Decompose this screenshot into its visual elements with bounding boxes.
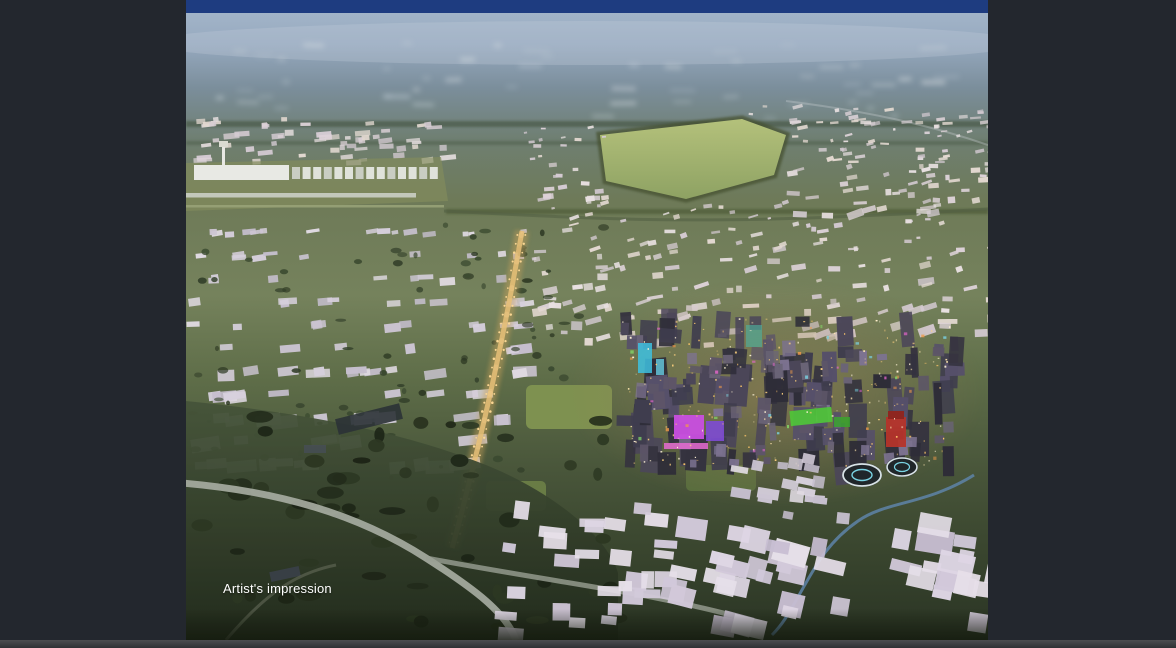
control-tower <box>222 145 225 165</box>
taxiway <box>186 205 444 208</box>
magenta-lit-building <box>674 415 704 439</box>
page-content: Artist's impression <box>186 0 988 640</box>
bottom-ui-strip <box>0 640 1176 648</box>
cyan-lit-tower <box>638 343 652 373</box>
image-caption: Artist's impression <box>223 581 332 596</box>
aerial-city-render: Artist's impression <box>186 13 988 640</box>
bottom-vignette <box>186 609 988 640</box>
aerial-render-graphic <box>186 13 988 640</box>
viewer-background: { "header": { "bar_label": "" }, "hero":… <box>0 0 1176 648</box>
runway <box>186 193 416 198</box>
purple-lit-building <box>706 421 724 441</box>
red-building <box>886 417 906 447</box>
terminal-building <box>194 165 289 180</box>
site-header-bar <box>186 0 988 13</box>
